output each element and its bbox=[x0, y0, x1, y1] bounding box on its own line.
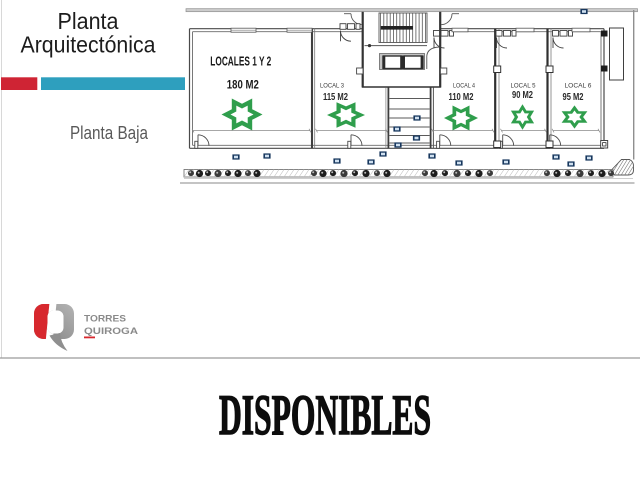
svg-text:Arquitectónica: Arquitectónica bbox=[21, 32, 156, 58]
svg-text:115 M2: 115 M2 bbox=[323, 92, 348, 103]
svg-text:LOCAL 6: LOCAL 6 bbox=[565, 84, 593, 90]
svg-text:DISPONIBLES: DISPONIBLES bbox=[219, 384, 431, 447]
svg-text:90 M2: 90 M2 bbox=[512, 90, 533, 101]
svg-text:LOCALES 1 Y 2: LOCALES 1 Y 2 bbox=[210, 55, 271, 69]
svg-text:95 M2: 95 M2 bbox=[563, 92, 584, 103]
svg-text:LOCAL 5: LOCAL 5 bbox=[511, 84, 537, 90]
svg-text:TORRES: TORRES bbox=[84, 314, 126, 325]
svg-text:QUIROGA: QUIROGA bbox=[84, 326, 138, 337]
svg-text:180 M2: 180 M2 bbox=[227, 80, 259, 92]
svg-text:110 M2: 110 M2 bbox=[449, 92, 474, 103]
svg-text:LOCAL 4: LOCAL 4 bbox=[453, 84, 476, 90]
svg-text:Planta Baja: Planta Baja bbox=[70, 122, 149, 143]
svg-text:Planta: Planta bbox=[58, 8, 119, 34]
svg-text:LOCAL 3: LOCAL 3 bbox=[320, 84, 345, 90]
